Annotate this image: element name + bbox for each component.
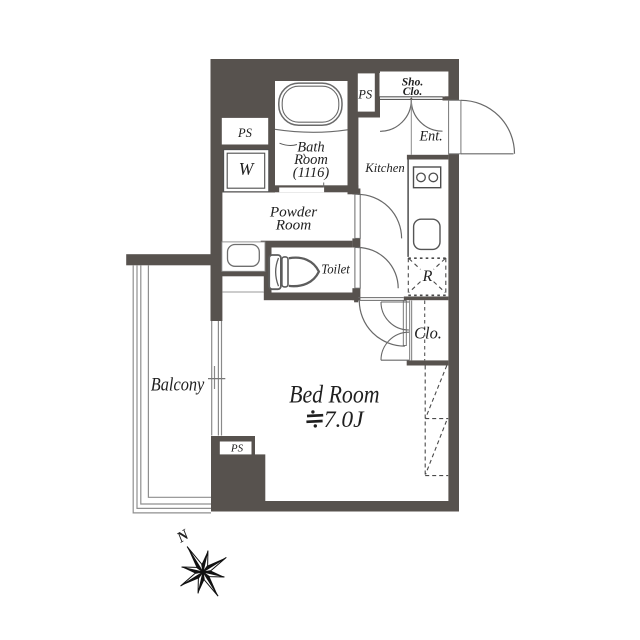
svg-text:PS: PS [357, 87, 373, 101]
svg-text:W: W [239, 159, 255, 179]
svg-text:PS: PS [237, 126, 253, 140]
svg-text:Toilet: Toilet [321, 263, 351, 278]
svg-text:Balcony: Balcony [151, 374, 205, 395]
svg-text:Bed Room: Bed Room [289, 381, 380, 408]
svg-text:R: R [422, 268, 433, 285]
svg-text:7.0J: 7.0J [324, 407, 365, 433]
svg-text:PS: PS [230, 443, 244, 455]
svg-text:(1116): (1116) [293, 165, 330, 181]
svg-text:Room: Room [275, 216, 311, 233]
svg-text:Kitchen: Kitchen [364, 161, 404, 175]
svg-text:Ent.: Ent. [419, 128, 443, 144]
svg-text:Clo.: Clo. [414, 324, 442, 343]
svg-text:Clo.: Clo. [403, 86, 423, 98]
